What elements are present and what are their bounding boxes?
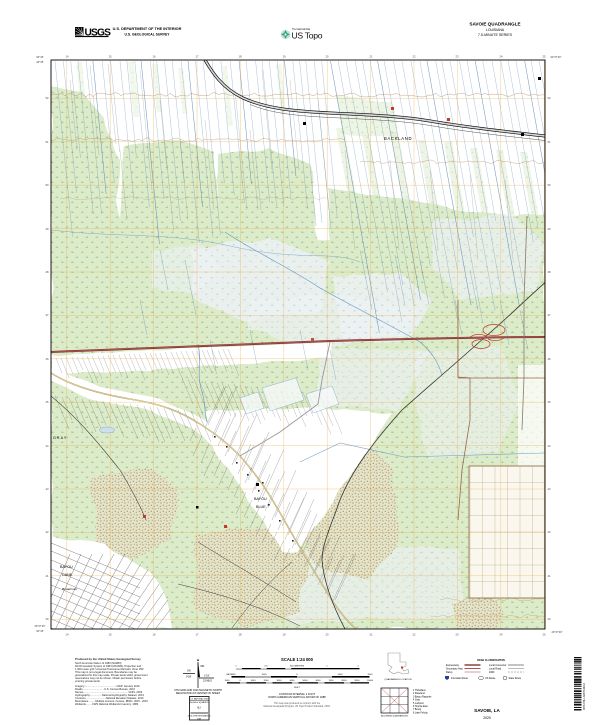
- svg-text:CANE: CANE: [62, 573, 73, 577]
- svg-text:48: 48: [548, 270, 551, 274]
- svg-text:6000: 6000: [316, 680, 322, 682]
- svg-text:16: 16: [153, 55, 156, 59]
- svg-text:GN: GN: [187, 670, 191, 673]
- svg-text:25: 25: [543, 633, 546, 637]
- svg-text:Broadmoor: Broadmoor: [62, 587, 78, 591]
- svg-text:2 Raceland: 2 Raceland: [413, 693, 425, 695]
- svg-text:DECLINATION AT CENTER OF SHEET: DECLINATION AT CENTER OF SHEET: [176, 692, 221, 695]
- svg-text:4WD: 4WD: [489, 671, 495, 674]
- svg-text:BACKLAND: BACKLAND: [384, 136, 412, 141]
- svg-text:19: 19: [283, 55, 286, 59]
- svg-text:BLUE: BLUE: [256, 505, 266, 509]
- svg-text:52: 52: [548, 96, 551, 100]
- svg-text:US Route: US Route: [485, 677, 496, 680]
- svg-text:1 Thibodaux: 1 Thibodaux: [413, 690, 426, 692]
- svg-text:KILOMETERS: KILOMETERS: [290, 666, 305, 668]
- svg-text:5000: 5000: [303, 680, 309, 682]
- svg-text:29°37'30": 29°37'30": [551, 630, 562, 634]
- svg-text:U.S. NATIONAL GRID: U.S. NATIONAL GRID: [190, 698, 209, 701]
- svg-text:SCALE 1:24 000: SCALE 1:24 000: [281, 657, 314, 662]
- svg-text:23: 23: [456, 55, 459, 59]
- svg-text:entering private lands.: entering private lands.: [75, 679, 101, 683]
- svg-text:BAYOU: BAYOU: [254, 497, 267, 501]
- svg-text:1000: 1000: [225, 680, 231, 682]
- svg-text:National Geospatial Program US: National Geospatial Program US Topo Prod…: [263, 705, 330, 708]
- svg-text:45: 45: [548, 400, 551, 404]
- svg-text:29°37'30": 29°37'30": [34, 624, 45, 628]
- svg-text:23 MILS: 23 MILS: [203, 680, 212, 683]
- svg-text:1°19': 1°19': [204, 675, 210, 678]
- svg-text:2000: 2000: [368, 674, 374, 676]
- svg-text:Wetlands.........FWS National: Wetlands.........FWS National Wetlands I…: [75, 702, 139, 706]
- svg-text:0.5: 0.5: [264, 666, 268, 668]
- svg-text:43: 43: [548, 487, 551, 491]
- svg-text:2: 2: [357, 666, 359, 668]
- svg-text:25: 25: [543, 55, 546, 59]
- svg-text:22: 22: [413, 55, 416, 59]
- svg-text:2020: 2020: [483, 716, 491, 720]
- svg-text:15R: 15R: [197, 718, 201, 720]
- svg-text:ISBN 978-1-60775-000-0: ISBN 978-1-60775-000-0: [583, 683, 586, 710]
- svg-text:Ramp: Ramp: [446, 671, 453, 674]
- svg-text:51: 51: [46, 140, 49, 144]
- svg-text:42: 42: [46, 530, 49, 534]
- svg-text:29°45': 29°45': [36, 60, 44, 64]
- svg-text:BAYOU: BAYOU: [60, 565, 73, 569]
- svg-text:NORTH AMERICAN VERTICAL DATUM: NORTH AMERICAN VERTICAL DATUM OF 1988: [268, 695, 326, 699]
- svg-text:20: 20: [326, 633, 329, 637]
- svg-text:State Route: State Route: [509, 677, 522, 680]
- svg-text:SAVOIE QUADRANGLE: SAVOIE QUADRANGLE: [469, 22, 520, 27]
- svg-text:50: 50: [548, 183, 551, 187]
- svg-text:7 Bourg: 7 Bourg: [413, 708, 422, 711]
- svg-text:90°45': 90°45': [36, 629, 44, 633]
- svg-text:19: 19: [283, 633, 286, 637]
- svg-text:90°37'30": 90°37'30": [550, 55, 561, 59]
- svg-text:7.5-MINUTE SERIES: 7.5-MINUTE SERIES: [478, 33, 513, 37]
- svg-text:Interstate Route: Interstate Route: [451, 677, 469, 680]
- svg-text:52: 52: [46, 96, 49, 100]
- svg-text:U.S. GEOLOGICAL SURVEY: U.S. GEOLOGICAL SURVEY: [124, 32, 170, 36]
- svg-text:8 Lake Felicity: 8 Lake Felicity: [413, 711, 429, 714]
- svg-text:47: 47: [46, 313, 49, 317]
- svg-text:7000: 7000: [329, 680, 335, 682]
- svg-text:0: 0: [239, 680, 241, 682]
- svg-text:40: 40: [548, 617, 551, 621]
- svg-text:24: 24: [500, 55, 503, 59]
- svg-text:45: 45: [46, 400, 49, 404]
- svg-text:43: 43: [46, 487, 49, 491]
- svg-text:ROAD CLASSIFICATION: ROAD CLASSIFICATION: [477, 659, 505, 662]
- svg-text:GRID ZONE DESIGNATION: GRID ZONE DESIGNATION: [188, 715, 211, 718]
- svg-text:50: 50: [46, 183, 49, 187]
- svg-text:4 Gray: 4 Gray: [413, 699, 421, 702]
- svg-text:51: 51: [548, 140, 551, 144]
- svg-text:3000: 3000: [277, 680, 283, 682]
- svg-text:44: 44: [46, 444, 49, 448]
- svg-text:0°28': 0°28': [186, 676, 192, 679]
- svg-text:15: 15: [109, 633, 112, 637]
- svg-text:LOUISIANA: LOUISIANA: [486, 28, 505, 32]
- svg-text:3 Bayou Raquette: 3 Bayou Raquette: [413, 695, 432, 698]
- svg-text:FEET: FEET: [294, 687, 300, 689]
- svg-text:SAVOIE, LA: SAVOIE, LA: [474, 708, 500, 713]
- svg-text:100,000-m SQUARE ID: 100,000-m SQUARE ID: [190, 701, 210, 704]
- svg-text:40: 40: [46, 617, 49, 621]
- svg-text:14: 14: [66, 633, 69, 637]
- svg-text:8000: 8000: [342, 680, 348, 682]
- svg-text:17: 17: [196, 55, 199, 59]
- svg-text:1000: 1000: [251, 680, 257, 682]
- svg-text:QUADRANGLE LOCATION: QUADRANGLE LOCATION: [385, 678, 412, 681]
- svg-text:21: 21: [370, 55, 373, 59]
- svg-text:47: 47: [548, 313, 551, 317]
- svg-text:1: 1: [235, 666, 237, 668]
- svg-text:U.S. DEPARTMENT OF THE INTERIO: U.S. DEPARTMENT OF THE INTERIOR: [113, 27, 182, 31]
- svg-text:ADJOINING QUADRANGLES: ADJOINING QUADRANGLES: [381, 715, 408, 718]
- svg-text:42: 42: [548, 530, 551, 534]
- svg-text:48: 48: [46, 270, 49, 274]
- svg-text:Produced by the United States: Produced by the United States Geological…: [75, 657, 141, 661]
- svg-text:46: 46: [46, 357, 49, 361]
- svg-text:20: 20: [326, 55, 329, 59]
- svg-text:2000: 2000: [264, 680, 270, 682]
- svg-text:14: 14: [66, 55, 69, 59]
- svg-text:4000: 4000: [290, 680, 296, 682]
- svg-text:1000: 1000: [338, 674, 344, 676]
- svg-text:US Topo: US Topo: [292, 31, 323, 41]
- svg-text:0: 0: [296, 674, 298, 676]
- svg-text:6 Houma East: 6 Houma East: [413, 705, 428, 708]
- svg-text:23: 23: [456, 633, 459, 637]
- svg-text:90°45': 90°45': [36, 55, 44, 59]
- svg-text:1000: 1000: [262, 674, 268, 676]
- svg-text:46: 46: [548, 357, 551, 361]
- svg-text:5 Lockport: 5 Lockport: [413, 702, 424, 705]
- svg-text:18: 18: [239, 633, 242, 637]
- svg-text:22: 22: [413, 633, 416, 637]
- svg-text:GRAY: GRAY: [53, 436, 67, 440]
- svg-text:41: 41: [548, 574, 551, 578]
- svg-text:49: 49: [548, 227, 551, 231]
- svg-text:10000: 10000: [367, 680, 374, 682]
- svg-text:44: 44: [548, 444, 551, 448]
- svg-text:49: 49: [46, 227, 49, 231]
- svg-text:MN: MN: [201, 665, 205, 668]
- svg-text:41: 41: [46, 574, 49, 578]
- svg-text:17: 17: [196, 633, 199, 637]
- svg-text:16: 16: [153, 633, 156, 637]
- svg-text:21: 21: [370, 633, 373, 637]
- svg-text:9000: 9000: [355, 680, 361, 682]
- svg-text:1: 1: [326, 666, 328, 668]
- svg-text:METERS: METERS: [226, 674, 236, 676]
- svg-text:18: 18: [239, 55, 242, 59]
- svg-text:24: 24: [500, 633, 503, 637]
- svg-text:15: 15: [109, 55, 112, 59]
